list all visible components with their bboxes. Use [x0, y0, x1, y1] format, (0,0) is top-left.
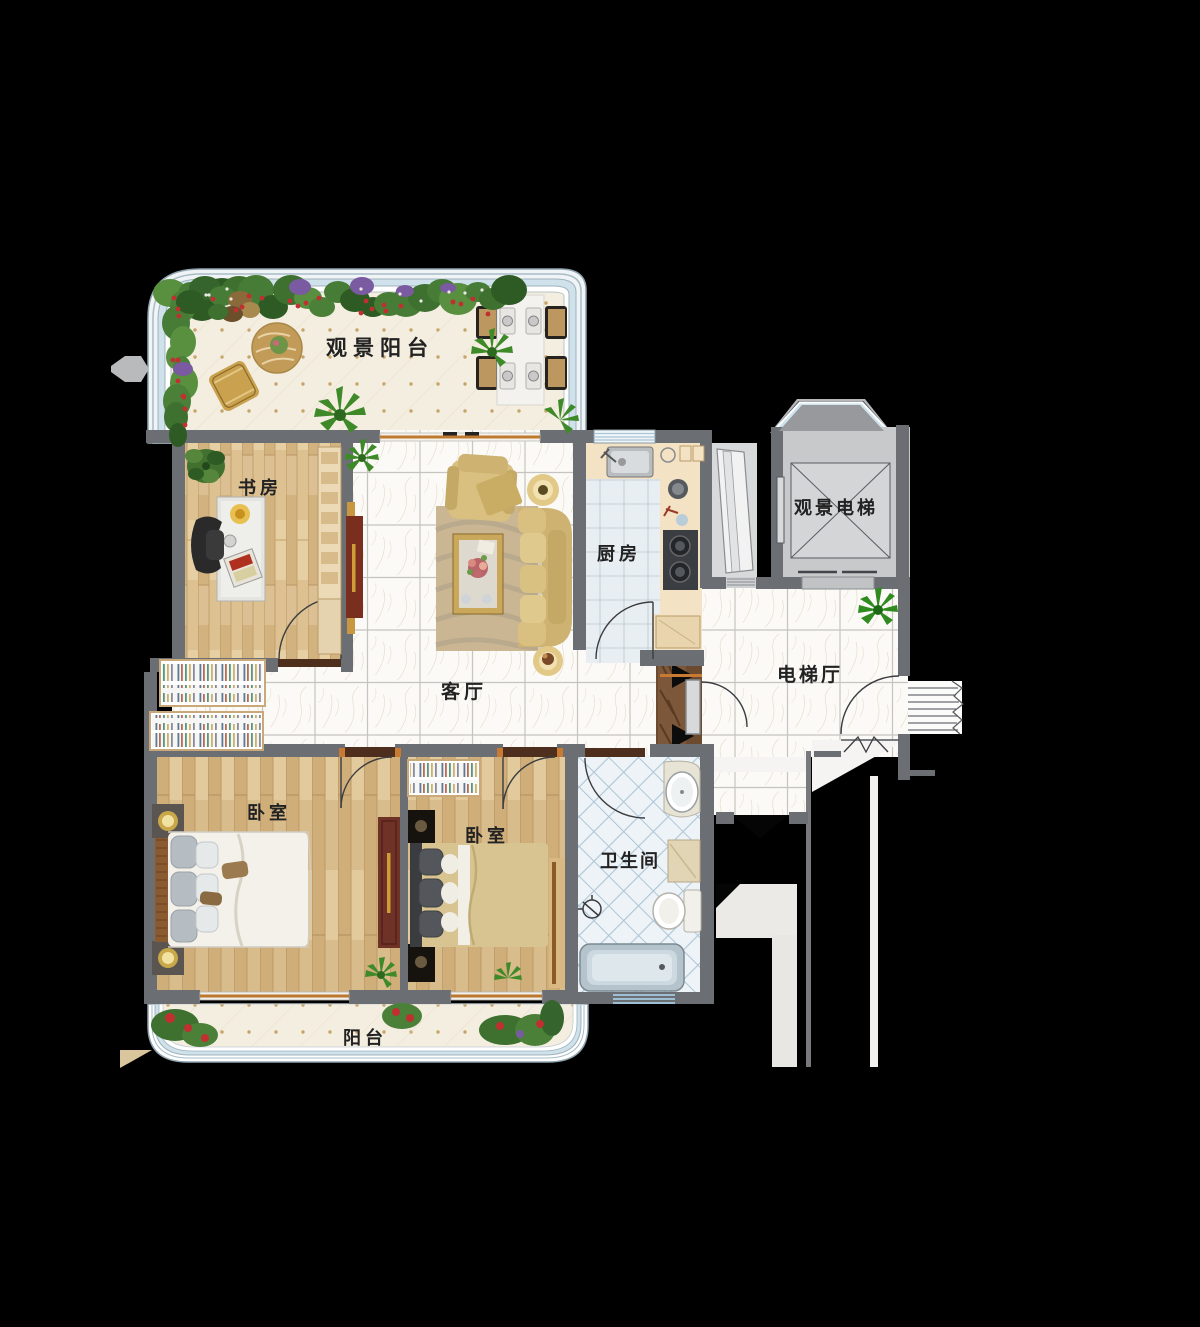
svg-text:卫生间: 卫生间: [600, 850, 660, 871]
svg-text:书房: 书房: [238, 477, 282, 498]
svg-text:客厅: 客厅: [441, 680, 487, 703]
svg-text:阳台: 阳台: [343, 1027, 387, 1048]
svg-text:卧室: 卧室: [247, 802, 291, 823]
svg-text:观景电梯: 观景电梯: [794, 497, 878, 518]
svg-text:电梯厅: 电梯厅: [777, 663, 843, 686]
svg-text:卧室: 卧室: [465, 825, 509, 846]
svg-text:观景阳台: 观景阳台: [326, 336, 434, 360]
svg-text:厨房: 厨房: [597, 543, 641, 564]
